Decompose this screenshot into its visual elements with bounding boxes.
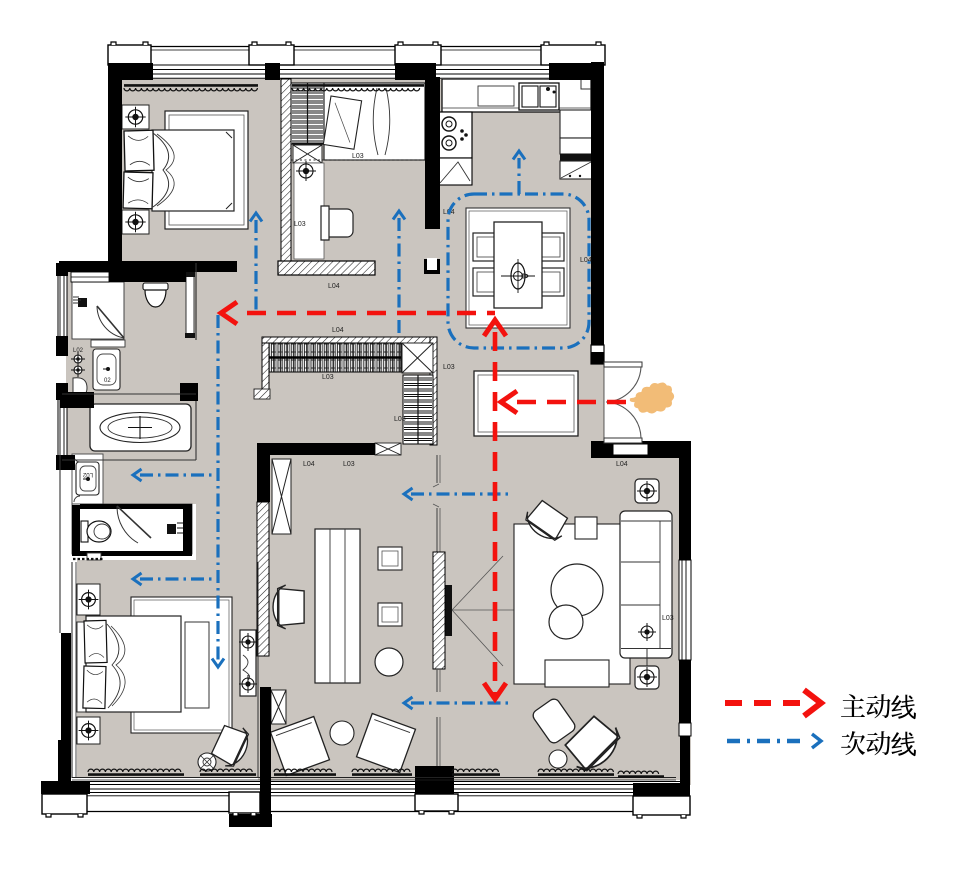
svg-text:L03: L03 xyxy=(352,153,364,160)
svg-text:L04: L04 xyxy=(328,283,340,290)
svg-text:02: 02 xyxy=(104,378,111,384)
svg-text:L03: L03 xyxy=(322,374,334,381)
svg-text:L03: L03 xyxy=(294,221,306,228)
svg-text:L04: L04 xyxy=(332,327,344,334)
svg-text:L03: L03 xyxy=(662,615,674,622)
svg-text:L04: L04 xyxy=(303,461,315,468)
svg-text:L03: L03 xyxy=(394,416,406,423)
svg-text:L03: L03 xyxy=(443,364,455,371)
svg-text:L04: L04 xyxy=(616,461,628,468)
svg-text:L02: L02 xyxy=(82,471,93,477)
svg-text:L03: L03 xyxy=(343,461,355,468)
